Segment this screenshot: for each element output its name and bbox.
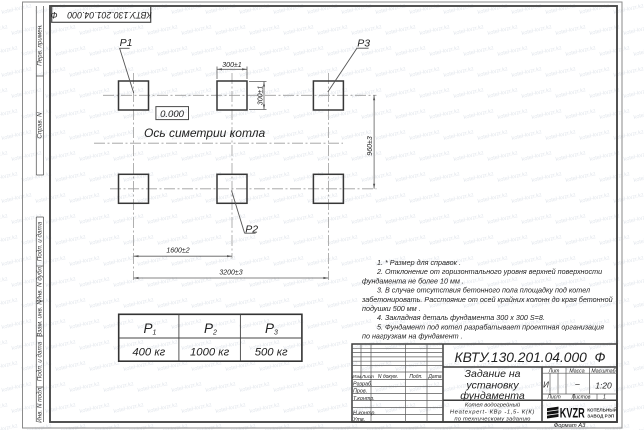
svg-text:КОТЕЛЬНЫЙ: КОТЕЛЬНЫЙ <box>587 406 617 413</box>
svg-text:Н.контр.: Н.контр. <box>353 411 376 417</box>
svg-text:Задание на: Задание на <box>465 368 521 380</box>
svg-text:Масса: Масса <box>569 369 584 375</box>
svg-text:1. * Размер для справок .: 1. * Размер для справок . <box>377 258 461 267</box>
svg-text:400 кг: 400 кг <box>132 347 165 359</box>
svg-text:1600±2: 1600±2 <box>166 248 189 255</box>
svg-text:Взам. инв. N: Взам. инв. N <box>37 300 44 337</box>
svg-text:фундамента не более 10 мм .: фундамента не более 10 мм . <box>362 276 464 285</box>
svg-text:Р2: Р2 <box>245 223 258 235</box>
svg-text:Дата: Дата <box>427 374 441 380</box>
svg-text:Масштаб: Масштаб <box>591 369 616 375</box>
svg-text:забетонировать. Расстояние от: забетонировать. Расстояние от осей крайн… <box>361 295 613 304</box>
svg-text:Подп. и дата: Подп. и дата <box>36 341 44 381</box>
svg-text:Подп. и дата: Подп. и дата <box>36 221 44 261</box>
svg-text:Ось симетрии котла: Ось симетрии котла <box>144 126 265 140</box>
svg-text:КВТУ.130.201.04.000 Ф: КВТУ.130.201.04.000 Ф <box>455 350 606 365</box>
svg-text:Котел водогрейный: Котел водогрейный <box>465 401 521 408</box>
svg-text:960±3: 960±3 <box>367 136 374 156</box>
svg-text:Подп.: Подп. <box>409 374 422 380</box>
svg-text:5. Фундамент под котел разраб: 5. Фундамент под котел разрабатывает про… <box>377 322 604 331</box>
svg-text:Инв. N дубл.: Инв. N дубл. <box>36 265 44 301</box>
svg-text:Изм.: Изм. <box>352 374 362 379</box>
svg-text:Р3: Р3 <box>357 37 370 49</box>
svg-text:Лист: Лист <box>546 395 561 401</box>
svg-text:Листов: Листов <box>571 395 591 401</box>
svg-text:фундамента: фундамента <box>460 390 525 402</box>
svg-text:N докум.: N докум. <box>378 374 398 380</box>
svg-text:Heatexpert- КВр -1,5- К(К): Heatexpert- КВр -1,5- К(К) <box>450 409 535 415</box>
svg-text:И: И <box>543 381 549 390</box>
svg-text:Перв. примен.: Перв. примен. <box>37 24 44 66</box>
svg-text:500 кг: 500 кг <box>255 347 288 359</box>
svg-text:300±1: 300±1 <box>222 62 242 69</box>
svg-text:1: 1 <box>603 395 606 401</box>
svg-text:Инв. N подл.: Инв. N подл. <box>36 386 44 423</box>
svg-text:Т.контр.: Т.контр. <box>353 396 375 402</box>
svg-text:KVZR: KVZR <box>560 404 585 420</box>
svg-text:0.000: 0.000 <box>160 109 184 120</box>
svg-text:1:20: 1:20 <box>595 381 612 391</box>
svg-text:2. Отклонение от горизонтальн: 2. Отклонение от горизонтального уровня … <box>376 267 602 276</box>
svg-text:–: – <box>574 379 580 388</box>
svg-text:по нагрузкам на фундамент .: по нагрузкам на фундамент . <box>362 332 463 341</box>
svg-text:Формат А3: Формат А3 <box>554 423 586 429</box>
svg-text:Лист: Лист <box>361 374 374 379</box>
svg-text:Р1: Р1 <box>120 37 133 49</box>
svg-text:Разраб.: Разраб. <box>353 381 373 387</box>
svg-text:3200±3: 3200±3 <box>219 269 242 276</box>
svg-text:3. В случае отсутствия бетонн: 3. В случае отсутствия бетонного пола пл… <box>377 286 590 295</box>
svg-text:КВТУ.130.201.04.000 Ф: КВТУ.130.201.04.000 Ф <box>51 10 152 20</box>
svg-text:Пров.: Пров. <box>353 388 367 394</box>
svg-text:1000 кг: 1000 кг <box>190 347 230 359</box>
svg-text:ЗАВОД РЭП: ЗАВОД РЭП <box>587 413 614 418</box>
svg-text:4. Закладная деталь фундамент: 4. Закладная деталь фундамента 300 х 300… <box>377 313 545 322</box>
svg-text:Лит: Лит <box>548 369 560 375</box>
svg-text:Утв.: Утв. <box>352 417 365 423</box>
svg-text:Справ. N: Справ. N <box>37 112 44 139</box>
svg-text:подушки 500 мм .: подушки 500 мм . <box>362 304 421 313</box>
svg-text:300±1: 300±1 <box>258 86 265 106</box>
svg-text:по техническому заданию: по техническому заданию <box>454 416 531 422</box>
